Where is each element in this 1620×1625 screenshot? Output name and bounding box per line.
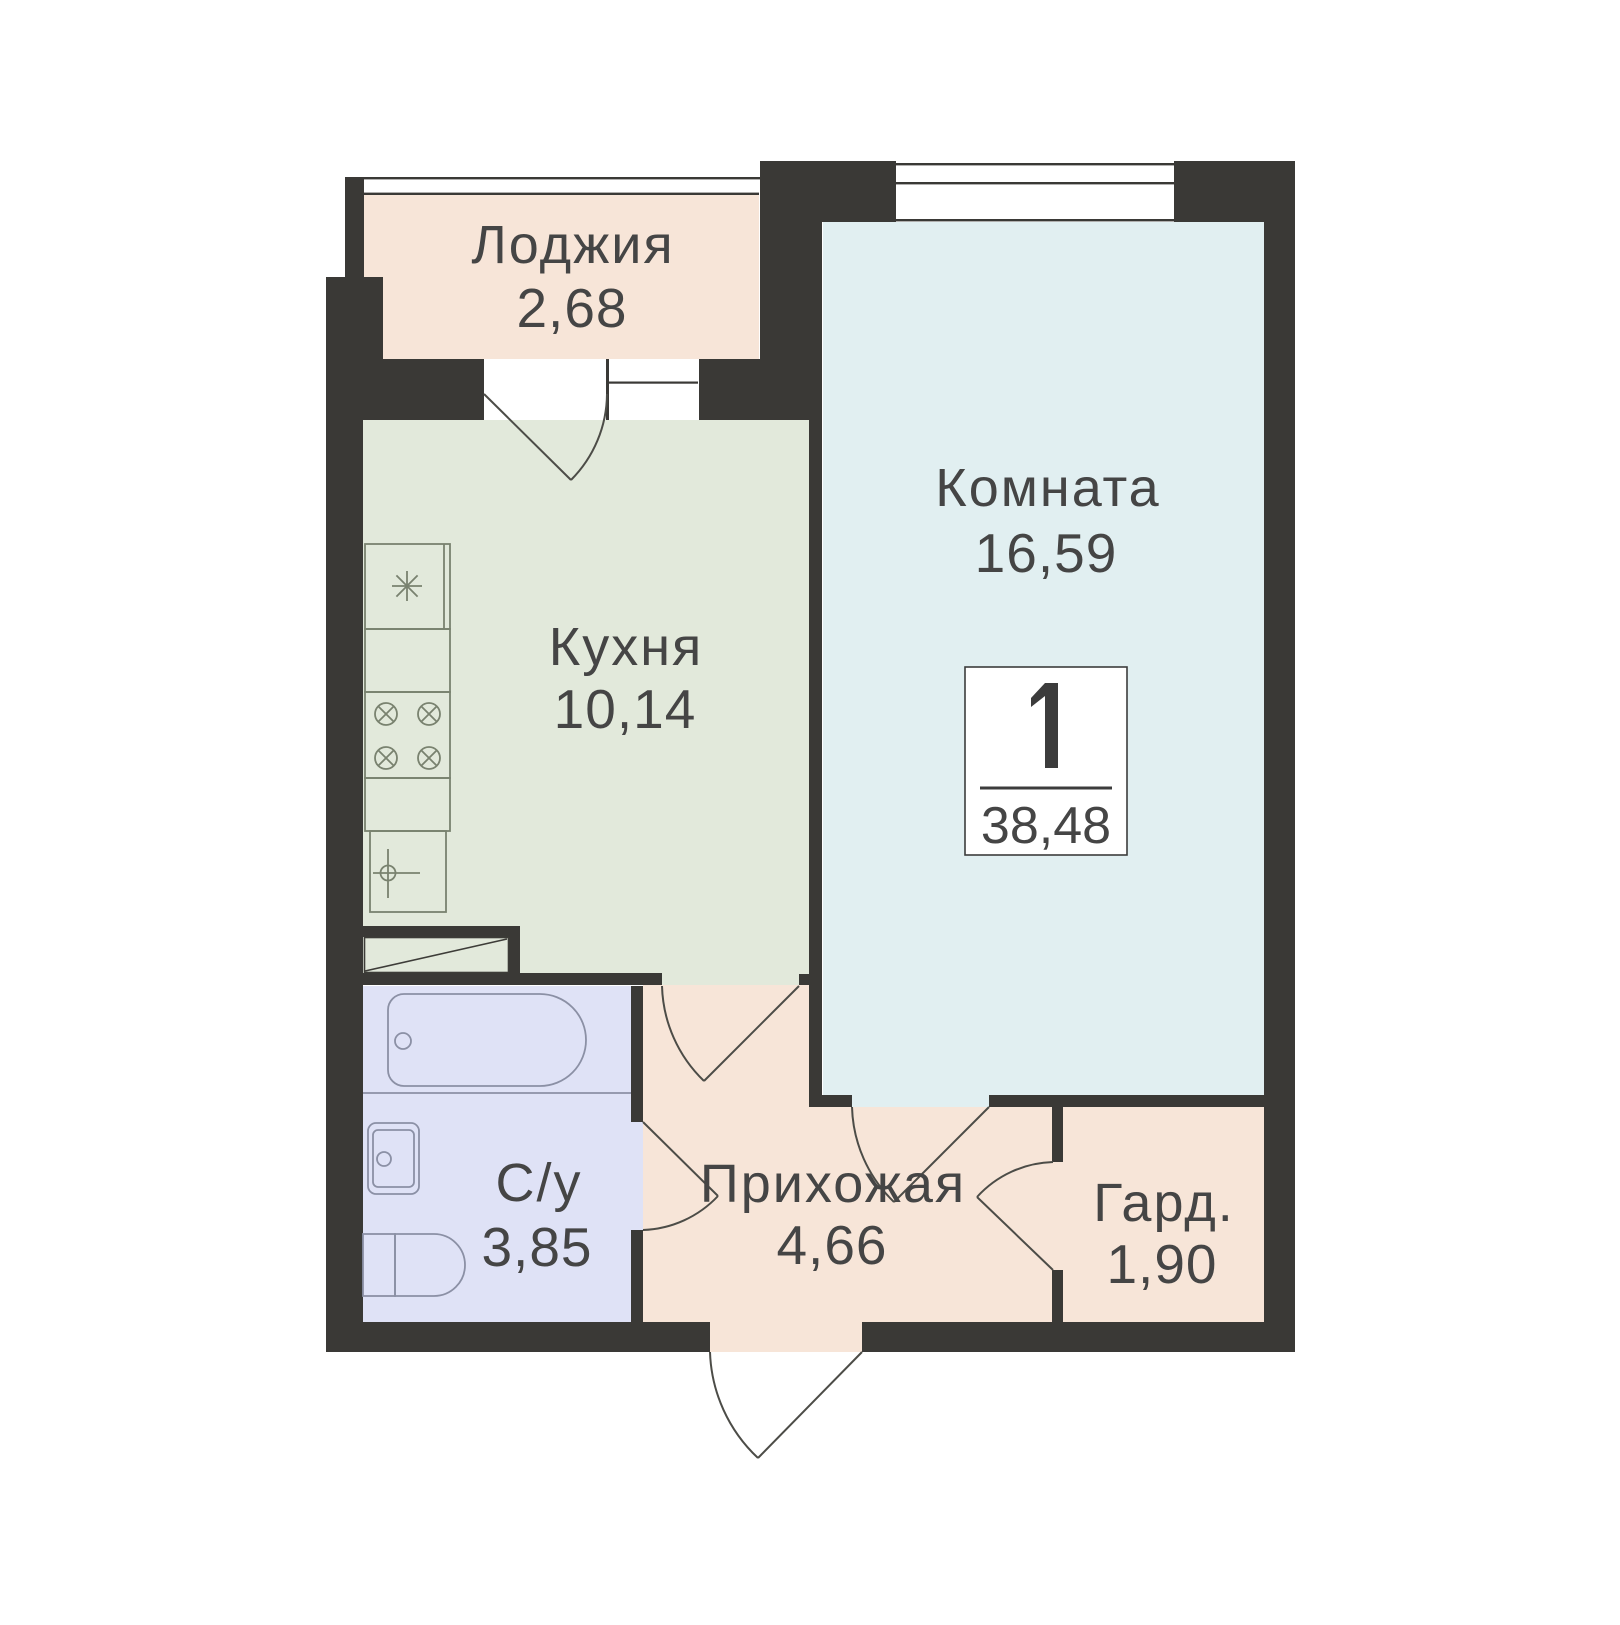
svg-text:3,85: 3,85 — [481, 1216, 592, 1278]
svg-text:4,66: 4,66 — [776, 1214, 887, 1276]
svg-text:10,14: 10,14 — [554, 678, 697, 740]
svg-text:2,68: 2,68 — [516, 277, 627, 339]
svg-text:Кухня: Кухня — [549, 617, 704, 677]
svg-text:16,59: 16,59 — [975, 522, 1118, 584]
svg-text:Комната: Комната — [935, 458, 1160, 518]
svg-text:Прихожая: Прихожая — [700, 1154, 966, 1214]
svg-text:Гард.: Гард. — [1093, 1173, 1235, 1233]
svg-text:38,48: 38,48 — [981, 797, 1111, 855]
svg-text:С/у: С/у — [496, 1153, 583, 1213]
svg-text:1,90: 1,90 — [1106, 1233, 1217, 1295]
svg-text:Лоджия: Лоджия — [471, 215, 674, 275]
